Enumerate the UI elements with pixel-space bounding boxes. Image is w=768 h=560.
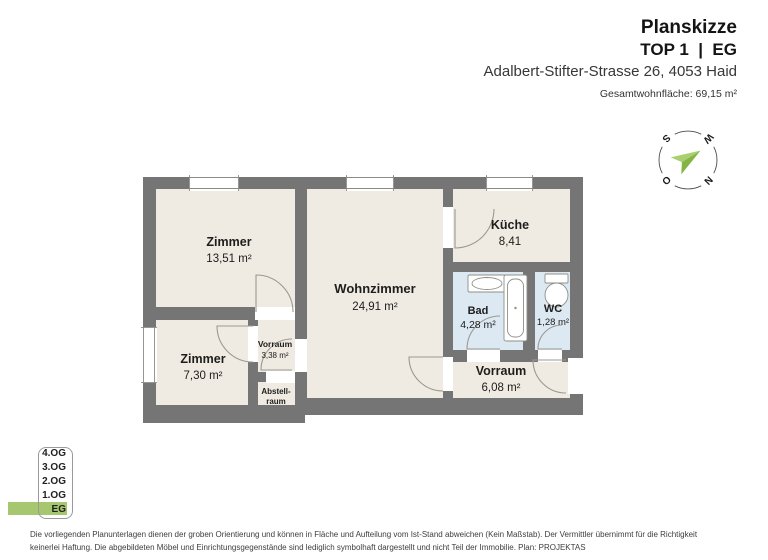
compass: S W N O: [659, 131, 717, 189]
planskizze-page: Planskizze TOP 1 | EG Adalbert-Stifter-S…: [0, 0, 768, 560]
room-label-wc: WC: [544, 303, 562, 315]
window-icon: [141, 327, 157, 383]
floor-plan: Zimmer 13,51 m² Wohnzimmer 24,91 m² Küch…: [0, 0, 768, 560]
compass-letter-o: O: [659, 173, 672, 186]
room-area-vorraum: 6,08 m²: [482, 382, 521, 394]
room-label-bad: Bad: [468, 305, 489, 317]
room-label-abstellraum-2: raum: [266, 397, 286, 406]
room-area-kueche: 8,41: [499, 236, 521, 248]
compass-letter-n: N: [701, 173, 714, 186]
window-icon: [189, 175, 239, 191]
room-area-vorraum-klein: 3,38 m²: [261, 351, 288, 360]
room-label-vorraum-klein: Vorraum: [258, 339, 293, 349]
room-area-wohnzimmer: 24,91 m²: [352, 301, 398, 313]
room-area-zimmer2: 7,30 m²: [184, 370, 223, 382]
disclaimer: Die vorliegenden Planunterlagen dienen d…: [30, 529, 746, 554]
window-icon: [346, 175, 394, 191]
room-label-kueche: Küche: [491, 218, 529, 232]
room-area-bad: 4,28 m²: [460, 319, 496, 331]
room-area-zimmer1: 13,51 m²: [206, 253, 252, 265]
floor-option-2og[interactable]: 2.OG: [8, 475, 66, 489]
compass-letter-w: W: [700, 131, 715, 146]
floor-option-3og[interactable]: 3.OG: [8, 461, 66, 475]
compass-needle-icon: [671, 142, 706, 174]
room-label-wohnzimmer: Wohnzimmer: [334, 281, 415, 296]
room-label-zimmer2: Zimmer: [180, 352, 225, 366]
disclaimer-line-2: keinerlei Haftung. Die abgebildeten Möbe…: [30, 542, 746, 555]
room-area-wc: 1,28 m²: [537, 317, 569, 328]
washbasin-icon: [468, 275, 506, 292]
room-label-abstellraum-1: Abstell-: [261, 387, 291, 396]
floor-option-1og[interactable]: 1.OG: [8, 489, 66, 503]
floor-option-4og[interactable]: 4.OG: [8, 447, 66, 461]
disclaimer-line-1: Die vorliegenden Planunterlagen dienen d…: [30, 529, 746, 542]
room-label-zimmer1: Zimmer: [206, 235, 251, 249]
room-label-vorraum: Vorraum: [476, 364, 526, 378]
window-icon: [486, 175, 533, 191]
bathtub-icon: [504, 275, 527, 341]
compass-letter-s: S: [659, 132, 672, 145]
floor-option-eg-active[interactable]: EG: [8, 503, 66, 517]
